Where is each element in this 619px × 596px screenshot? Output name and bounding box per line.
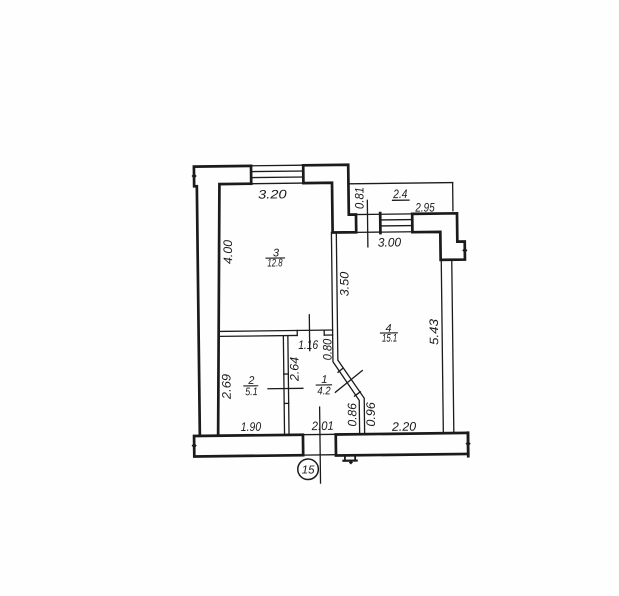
svg-text:1.90: 1.90 (241, 420, 262, 434)
svg-text:2.20: 2.20 (391, 420, 417, 434)
svg-text:0.96: 0.96 (364, 402, 378, 427)
svg-text:2.01: 2.01 (311, 419, 334, 433)
svg-text:3.20: 3.20 (258, 187, 287, 201)
svg-text:2.64: 2.64 (287, 357, 301, 383)
svg-text:2.4: 2.4 (392, 187, 407, 201)
svg-text:4.2: 4.2 (317, 385, 330, 397)
svg-text:5.43: 5.43 (427, 319, 441, 345)
svg-text:4.00: 4.00 (221, 240, 235, 264)
svg-text:0.81: 0.81 (352, 187, 366, 209)
svg-text:12.8: 12.8 (267, 257, 283, 269)
svg-text:1: 1 (321, 374, 327, 386)
svg-text:15.1: 15.1 (382, 332, 397, 344)
svg-text:2.69: 2.69 (219, 374, 233, 401)
svg-text:2.95: 2.95 (414, 200, 434, 214)
svg-text:2: 2 (247, 375, 254, 387)
svg-text:3.00: 3.00 (378, 235, 402, 249)
svg-text:0.80: 0.80 (320, 339, 334, 361)
svg-text:0.86: 0.86 (345, 403, 359, 427)
svg-text:15: 15 (302, 464, 316, 476)
svg-text:1.16: 1.16 (298, 338, 318, 352)
svg-text:5.1: 5.1 (245, 386, 258, 398)
svg-text:3.50: 3.50 (337, 272, 351, 297)
